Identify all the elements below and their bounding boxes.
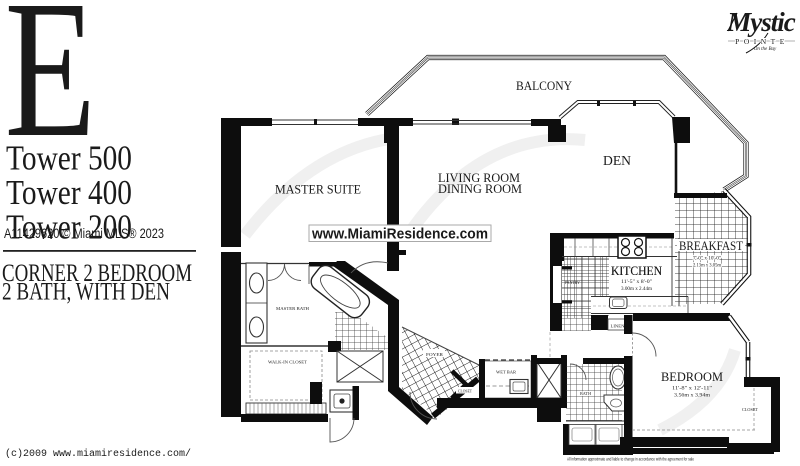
svg-text:Tower 500: Tower 500	[6, 139, 132, 178]
svg-text:LINEN: LINEN	[611, 325, 625, 329]
svg-text:BALCONY: BALCONY	[516, 79, 572, 93]
svg-text:WET BAR: WET BAR	[496, 370, 516, 375]
svg-text:FOYER: FOYER	[426, 352, 444, 357]
svg-text:PANTRY: PANTRY	[565, 281, 580, 285]
svg-text:MASTER SUITE: MASTER SUITE	[275, 183, 361, 197]
svg-text:On the Bay: On the Bay	[754, 47, 777, 52]
svg-text:2 BATH, WITH DEN: 2 BATH, WITH DEN	[2, 279, 170, 306]
svg-text:7'-0" x 10'-0": 7'-0" x 10'-0"	[693, 257, 721, 262]
svg-text:BREAKFAST: BREAKFAST	[679, 239, 743, 253]
svg-text:11'-5" x 8'-0": 11'-5" x 8'-0"	[621, 280, 652, 285]
svg-text:CLOSET: CLOSET	[458, 389, 473, 394]
svg-text:2.13m x 3.05m: 2.13m x 3.05m	[693, 264, 721, 269]
svg-text:MASTER BATH: MASTER BATH	[276, 306, 310, 311]
svg-text:(c)2009 www.miamiresidence.com: (c)2009 www.miamiresidence.com/	[5, 448, 191, 460]
svg-text:All information approximate an: All information approximate and liable t…	[567, 457, 695, 462]
svg-text:11'-8" x 12'-11": 11'-8" x 12'-11"	[672, 387, 712, 392]
svg-text:Tower 400: Tower 400	[6, 173, 132, 212]
svg-text:www.MiamiResidence.com: www.MiamiResidence.com	[311, 227, 488, 243]
svg-text:DINING ROOM: DINING ROOM	[438, 182, 522, 196]
svg-text:3.00m x 2.44m: 3.00m x 2.44m	[621, 287, 652, 292]
svg-text:BEDROOM: BEDROOM	[661, 370, 723, 384]
svg-text:BATH: BATH	[580, 391, 592, 396]
svg-text:A11429620 © Miami MLS® 2023: A11429620 © Miami MLS® 2023	[4, 226, 164, 241]
svg-text:Mystic: Mystic	[726, 7, 796, 37]
svg-text:3.56m x 3.94m: 3.56m x 3.94m	[674, 394, 710, 399]
svg-text:DEN: DEN	[603, 154, 631, 169]
svg-text:CLOSET: CLOSET	[742, 408, 759, 412]
svg-text:WALK-IN CLOSET: WALK-IN CLOSET	[268, 360, 307, 365]
svg-text:POINTE: POINTE	[735, 37, 789, 46]
svg-text:KITCHEN: KITCHEN	[611, 263, 663, 278]
